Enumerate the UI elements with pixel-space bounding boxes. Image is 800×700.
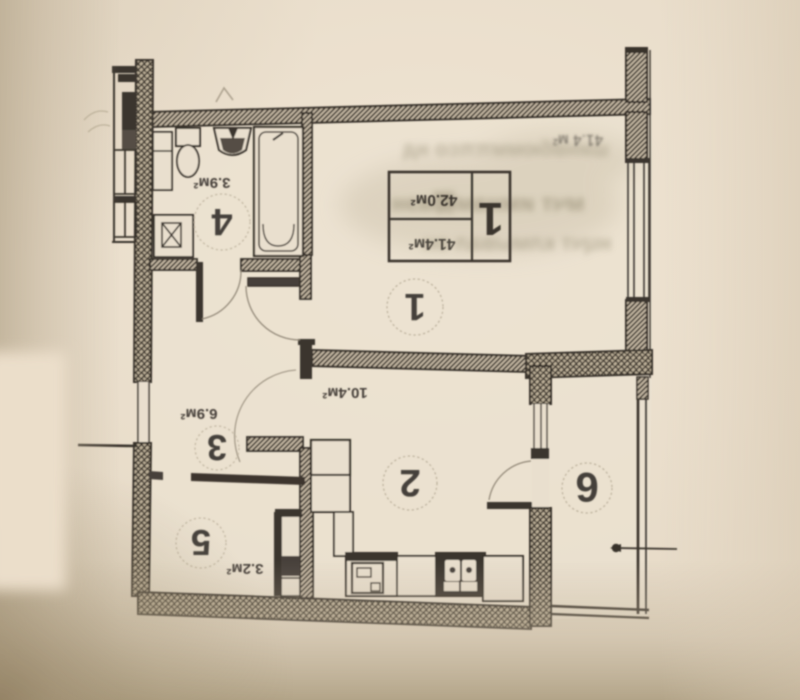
svg-text:2: 2 [399, 461, 420, 503]
svg-text:1: 1 [478, 193, 504, 245]
svg-text:3.9м²: 3.9м² [194, 174, 231, 191]
svg-text:1: 1 [404, 285, 425, 327]
svg-text:41.4 м²: 41.4 м² [553, 131, 603, 148]
svg-text:6: 6 [575, 464, 598, 511]
svg-text:4: 4 [211, 200, 232, 242]
svg-text:42.0м²: 42.0м² [411, 191, 458, 208]
svg-text:10.4м²: 10.4м² [322, 384, 367, 401]
svg-text:6.9м²: 6.9м² [181, 405, 218, 422]
svg-text:41.4м²: 41.4м² [409, 235, 456, 252]
